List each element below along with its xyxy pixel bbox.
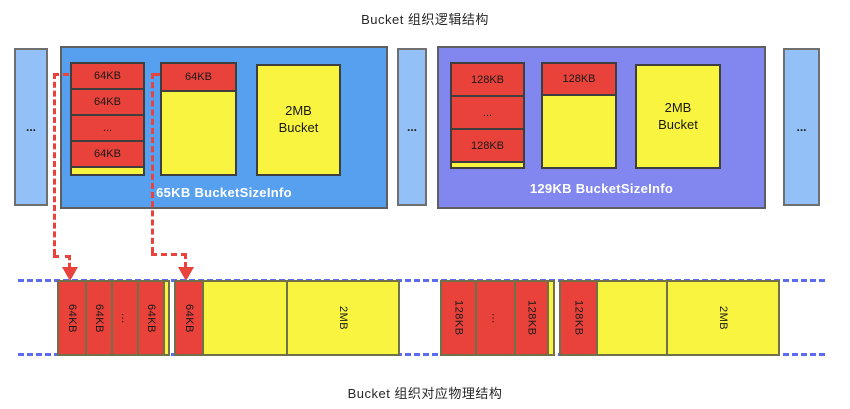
bar-segment-used: 128KB [514, 282, 547, 354]
bar-segment-used: 128KB [442, 282, 475, 354]
partial-used-block: 64KB [162, 64, 235, 92]
ellipsis-box-middle: ... [397, 48, 427, 206]
used-block: 128KB [452, 64, 523, 97]
free-bucket-word: Bucket [279, 120, 319, 137]
segment-label: 2MB [717, 306, 729, 330]
free-remainder-strip [452, 163, 523, 167]
segment-label: 64KB [183, 304, 195, 333]
bar-segment-free [596, 282, 666, 354]
bucketsizeinfo-label: 65KB BucketSizeInfo [62, 185, 386, 200]
free-bucket-size: 2MB [665, 100, 692, 117]
bar-segment-remainder [547, 282, 553, 354]
bucket-sizeinfo-129kb: 128KB ... 128KB 128KB 2MB Bucket 129KB B… [437, 46, 766, 209]
segment-label: 128KB [453, 300, 465, 336]
physical-structure-title: Bucket 组织对应物理结构 [0, 383, 850, 402]
logical-structure-title: Bucket 组织逻辑结构 [0, 9, 850, 28]
bucket-cache-diagram: Bucket 组织逻辑结构 ... 64KB 64KB ... 64KB 64K… [0, 0, 850, 409]
partial-used-block: 128KB [543, 64, 615, 96]
bar-segment-used: 128KB [561, 282, 596, 354]
ellipsis-text: ... [796, 120, 806, 134]
partial-and-free-group: 64KB 2MB [174, 280, 400, 356]
free-bucket-word: Bucket [658, 117, 698, 134]
block-label: 64KB [94, 148, 121, 160]
used-block-stack-128kb: 128KB ... 128KB [450, 62, 525, 169]
segment-label: ... [490, 313, 502, 324]
used-block-ellipsis: ... [72, 116, 143, 142]
partial-and-free-group: 128KB 2MB [559, 280, 780, 356]
segment-label: 2MB [337, 306, 349, 330]
bar-segment-remainder [163, 282, 168, 354]
used-block: 64KB [72, 64, 143, 90]
partial-free-area [543, 96, 615, 167]
used-block-ellipsis: ... [452, 97, 523, 130]
partial-free-area [162, 92, 235, 174]
bucketsizeinfo-label: 129KB BucketSizeInfo [439, 181, 764, 196]
allocated-bucket-group: 128KB ... 128KB [440, 280, 555, 356]
block-label: 128KB [562, 73, 595, 85]
segment-label: 128KB [573, 300, 585, 336]
free-bucket-size: 2MB [285, 103, 312, 120]
block-label: 64KB [94, 96, 121, 108]
ellipsis-box-right: ... [783, 48, 820, 206]
bar-segment-used: 64KB [85, 282, 111, 354]
block-label: ... [483, 107, 492, 119]
free-remainder-strip [72, 168, 143, 174]
ellipsis-text: ... [26, 120, 36, 134]
physical-bar-64kb: 64KB 64KB ... 64KB 64KB 2MB [57, 280, 400, 356]
ellipsis-text: ... [407, 120, 417, 134]
segment-label: 64KB [145, 304, 157, 333]
bar-segment-used: 64KB [59, 282, 85, 354]
bar-segment-free-bucket: 2MB [286, 282, 398, 354]
bar-segment-ellipsis: ... [475, 282, 514, 354]
mapping-dashed-line [53, 73, 56, 255]
bar-segment-ellipsis: ... [111, 282, 137, 354]
block-label: ... [103, 122, 112, 134]
block-label: 64KB [185, 71, 212, 83]
bar-segment-used: 64KB [137, 282, 163, 354]
segment-label: 64KB [66, 304, 78, 333]
block-label: 128KB [471, 74, 504, 86]
segment-label: 128KB [526, 300, 538, 336]
ellipsis-box-left: ... [14, 48, 48, 206]
allocated-bucket-group: 64KB 64KB ... 64KB [57, 280, 170, 356]
block-label: 64KB [94, 70, 121, 82]
partial-bucket-128kb: 128KB [541, 62, 617, 169]
used-block: 64KB [72, 90, 143, 116]
bucket-sizeinfo-65kb: 64KB 64KB ... 64KB 64KB 2MB Bucket 65KB … [60, 46, 388, 209]
used-block: 128KB [452, 130, 523, 163]
mapping-dashed-line [151, 253, 187, 256]
used-block-stack-64kb: 64KB 64KB ... 64KB [70, 62, 145, 176]
partial-bucket-64kb: 64KB [160, 62, 237, 176]
free-bucket-2mb: 2MB Bucket [635, 64, 721, 169]
bar-segment-free-bucket: 2MB [666, 282, 778, 354]
free-bucket-2mb: 2MB Bucket [256, 64, 341, 176]
segment-label: 64KB [93, 304, 105, 333]
bar-segment-free [202, 282, 286, 354]
mapping-dashed-line [151, 73, 154, 253]
mapping-dashed-line [184, 253, 187, 268]
bar-segment-used: 64KB [176, 282, 202, 354]
physical-bar-128kb: 128KB ... 128KB 128KB 2MB [440, 280, 780, 356]
segment-label: ... [119, 313, 131, 324]
used-block: 64KB [72, 142, 143, 168]
block-label: 128KB [471, 140, 504, 152]
